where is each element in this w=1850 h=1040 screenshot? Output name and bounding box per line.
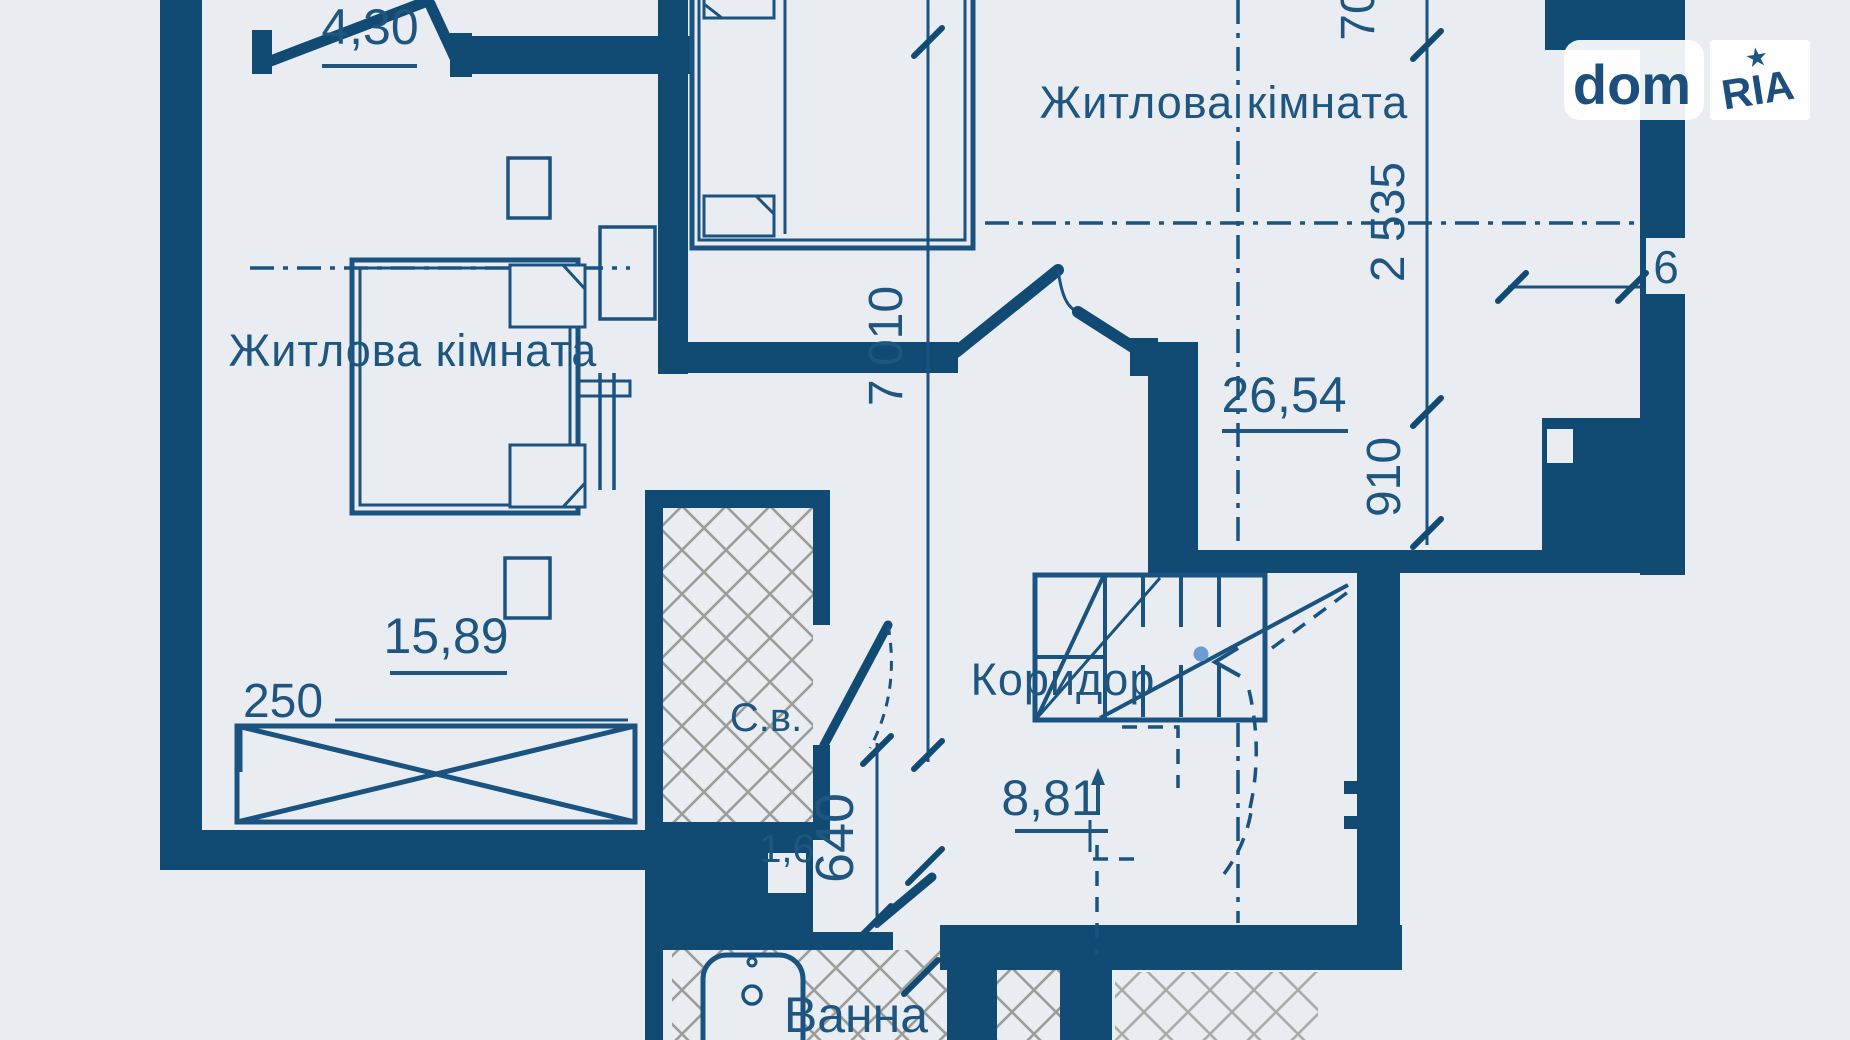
label-corridor: Коридор [971, 654, 1156, 705]
dim-70-partial: 70 [1332, 0, 1385, 41]
dim-2535: 2 535 [1362, 162, 1415, 282]
dim-640: 640 [805, 793, 865, 883]
dim-7010: 7 010 [860, 286, 913, 406]
label-bedroom-left: Житлова кімната [229, 325, 598, 376]
dim-250: 250 [243, 675, 323, 728]
area-living-right: 26,54 [1221, 367, 1346, 423]
floor-plan-page: Житлова кімната Житлова кімната Коридор … [0, 0, 1850, 1040]
floor-plan-drawing: Житлова кімната Житлова кімната Коридор … [0, 0, 1850, 1040]
area-corridor: 8,81 [1001, 770, 1098, 826]
label-sanitary: С.в. [730, 696, 802, 740]
logo-ria-star-icon: ★ [1743, 40, 1771, 73]
area-balcony: 4,30 [321, 0, 418, 55]
label-bath: Ванна [784, 987, 928, 1040]
dim-6-notch: 6 [1653, 241, 1679, 293]
logo-dom-text: dom [1573, 53, 1691, 116]
stair-newel-dot [1194, 647, 1209, 662]
dim-910: 910 [1358, 437, 1411, 517]
area-bedroom-left: 15,89 [383, 608, 508, 664]
label-living-right: Житлова кімната [1040, 77, 1409, 128]
logo-dom-ria: dom RIA ★ [1564, 40, 1810, 120]
